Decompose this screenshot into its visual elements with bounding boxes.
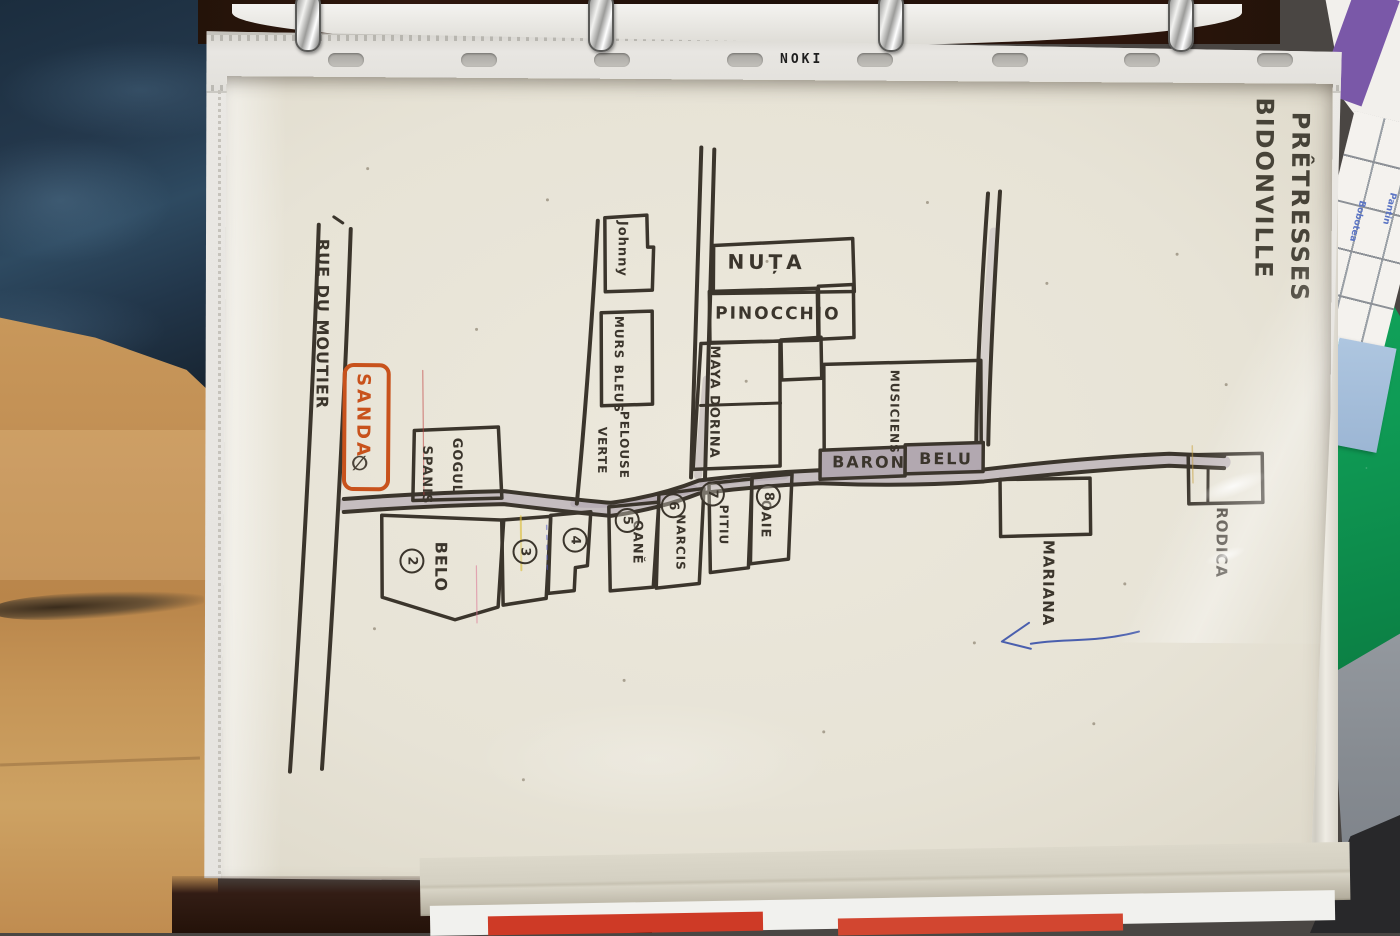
punch-hole	[727, 53, 763, 67]
wood-floor-light-patch	[0, 430, 218, 580]
red-paper-edge	[838, 914, 1123, 936]
map-page: BIDONVILLE PRÊTRESSES RUE DU MOUTIER SAN…	[221, 76, 1333, 886]
binder-ring	[588, 0, 614, 52]
binder-ring	[295, 0, 321, 52]
binder-ring	[1168, 0, 1194, 52]
plastic-sleeve: NOKI	[202, 26, 1344, 892]
noki-brand-label: NOKI	[780, 52, 823, 67]
form-label-pantin: Pantin	[1380, 191, 1398, 225]
red-paper-edge	[488, 912, 763, 936]
punch-hole	[1257, 53, 1293, 67]
punch-hole	[992, 53, 1028, 67]
page-edge-shadow	[221, 76, 1333, 886]
form-label-bobotea: Bobotea	[1347, 199, 1367, 242]
binder-ring	[878, 0, 904, 52]
punch-hole	[857, 53, 893, 67]
punch-hole	[594, 53, 630, 67]
punch-hole	[328, 53, 364, 67]
punch-hole	[1124, 53, 1160, 67]
punch-hole	[461, 53, 497, 67]
